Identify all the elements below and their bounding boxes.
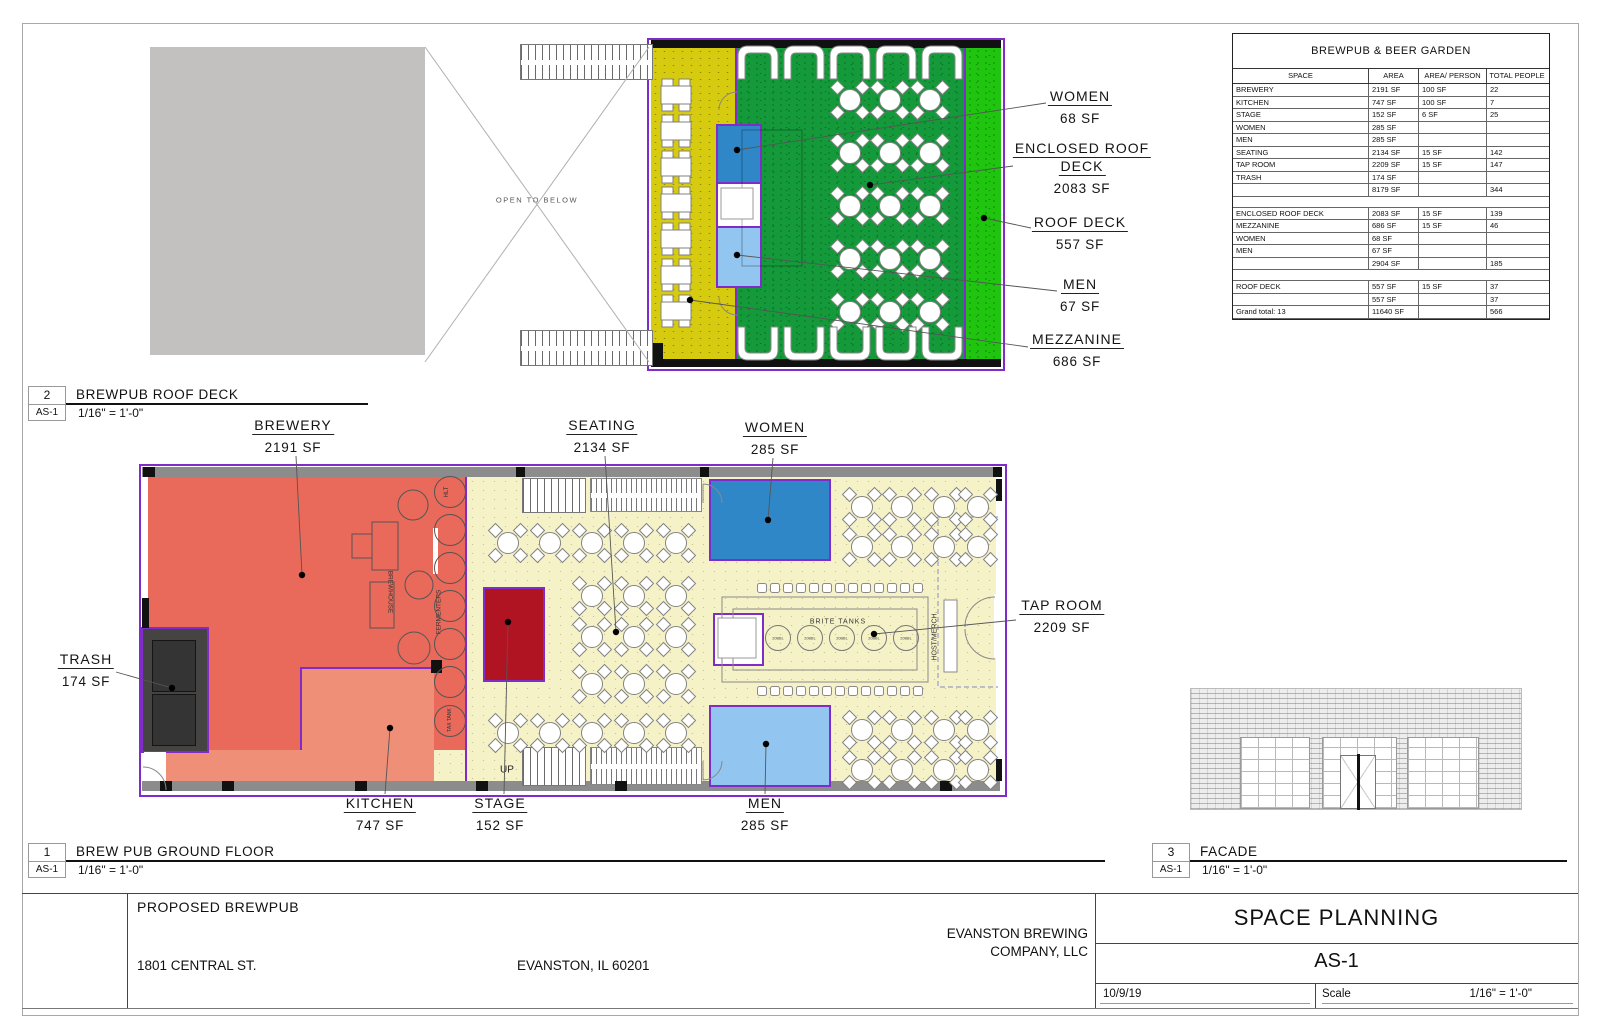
facade-window-right (1407, 737, 1479, 809)
area-table-cell-people: 185 (1486, 258, 1547, 270)
facade-door-mullion (1357, 754, 1360, 810)
area-table-cell-area: 8179 SF (1368, 184, 1418, 196)
roof-room-women (716, 124, 762, 184)
area-table-cell-area: 557 SF (1368, 281, 1418, 293)
hightop-bench-top (590, 478, 702, 512)
area-table-cell-per (1418, 306, 1486, 318)
area-table-cell-per (1418, 172, 1486, 184)
seating-stair-bottom (522, 747, 586, 786)
area-table-cell-people (1486, 122, 1547, 134)
area-table-cell-per (1418, 245, 1486, 257)
callout-mezzanine: MEZZANINE686 SF (1030, 331, 1124, 369)
tag-sheet: AS-1 (28, 862, 66, 878)
area-table-cell-area: 152 SF (1368, 109, 1418, 121)
callout-area-value: 686 SF (1030, 354, 1124, 369)
callout-label: MEN (746, 795, 784, 813)
room-enclosed-roof-deck (737, 48, 966, 359)
callout-label: TAP ROOM (1019, 597, 1104, 615)
area-table-cell-people (1486, 172, 1547, 184)
area-table-cell-per: 100 SF (1418, 97, 1486, 109)
area-table-cell-people: 566 (1486, 306, 1547, 318)
callout-label: MEN (1061, 276, 1099, 294)
callout-label: MEZZANINE (1030, 331, 1124, 349)
area-table-cell-area: 2209 SF (1368, 159, 1418, 171)
callout-men: MEN67 SF (1060, 276, 1100, 314)
wall-pier (516, 467, 525, 477)
area-table-row (1233, 197, 1549, 208)
roof-stair-top (520, 44, 653, 80)
wall-pier (996, 759, 1002, 781)
area-table-row: KITCHEN747 SF100 SF7 (1233, 97, 1549, 110)
callout-seating: SEATING2134 SF (566, 417, 637, 455)
area-table-body: BREWERY2191 SF100 SF22KITCHEN747 SF100 S… (1233, 84, 1549, 319)
brewery-seating-divider (465, 477, 467, 781)
seating-stair-top (522, 478, 586, 513)
scale-underline (1322, 1003, 1573, 1004)
area-table-cell-space: MEN (1233, 134, 1368, 146)
wall-pier (700, 467, 709, 477)
area-table-cell-space (1233, 258, 1368, 270)
area-table-cell-space: KITCHEN (1233, 97, 1368, 109)
area-table-cell-people: 37 (1486, 294, 1547, 306)
area-table-cell-people (1486, 245, 1547, 257)
roof-elevator (716, 182, 762, 228)
col-area-person: AREA/ PERSON (1418, 69, 1486, 83)
company-line2: COMPANY, LLC (860, 943, 1088, 961)
area-table-cell-per: 15 SF (1418, 147, 1486, 159)
callout-area-value: 2191 SF (252, 440, 334, 455)
callout-area-value: 174 SF (58, 674, 114, 689)
callout-stage: STAGE152 SF (472, 795, 527, 833)
wall-pier (160, 781, 172, 791)
area-table-cell-area: 747 SF (1368, 97, 1418, 109)
tax-tank-label: TAX TANK (447, 708, 453, 732)
area-table: BREWPUB & BEER GARDEN SPACE AREA AREA/ P… (1232, 33, 1550, 320)
area-table-cell-space: WOMEN (1233, 122, 1368, 134)
area-table-cell-area: 686 SF (1368, 220, 1418, 232)
callout-area-value: 2134 SF (566, 440, 637, 455)
brewhouse-label: BREWHOUSE (387, 571, 394, 614)
area-table-row: TAP ROOM2209 SF15 SF147 (1233, 159, 1549, 172)
date-underline (1100, 1003, 1310, 1004)
tag-scale: 1/16" = 1'-0" (1202, 863, 1267, 877)
hlt-label: HLT (444, 487, 450, 498)
callout-label: WOMEN (1048, 88, 1112, 106)
wall-pier (996, 479, 1002, 501)
area-table-row: WOMEN285 SF (1233, 122, 1549, 135)
callout-area-value: 747 SF (344, 818, 416, 833)
room-women-ground (709, 479, 831, 561)
drawing-tag-roof-deck: 2 AS-1 BREWPUB ROOF DECK 1/16" = 1'-0" (28, 386, 388, 422)
area-table-cell-space: TRASH (1233, 172, 1368, 184)
fermenters-label: FERMENTERS (436, 590, 443, 635)
area-table-cell-space: MEN (1233, 245, 1368, 257)
area-table-cell-space: SEATING (1233, 147, 1368, 159)
area-table-cell-people: 139 (1486, 208, 1547, 220)
area-table-row: 8179 SF344 (1233, 184, 1549, 197)
callout-area-value: 285 SF (741, 818, 789, 833)
area-table-row: 2904 SF185 (1233, 258, 1549, 271)
area-table-cell-space: ENCLOSED ROOF DECK (1233, 208, 1368, 220)
tag-number: 2 (28, 386, 66, 405)
wall-pier (143, 467, 155, 477)
area-table-cell-area: 2083 SF (1368, 208, 1418, 220)
area-table-cell-per: 6 SF (1418, 109, 1486, 121)
scale-value: 1/16" = 1'-0" (1400, 988, 1532, 1000)
area-table-cell-per: 15 SF (1418, 281, 1486, 293)
tag-title: BREWPUB ROOF DECK (76, 387, 238, 402)
deck-divider (964, 48, 966, 359)
area-table-row: SEATING2134 SF15 SF142 (1233, 147, 1549, 160)
area-table-row: ENCLOSED ROOF DECK2083 SF15 SF139 (1233, 208, 1549, 221)
project-address: 1801 CENTRAL ST. (137, 958, 257, 973)
callout-label: KITCHEN (344, 795, 416, 813)
company-line1: EVANSTON BREWING (860, 925, 1088, 943)
area-table-cell-space: ROOF DECK (1233, 281, 1368, 293)
wall-pier (476, 781, 488, 791)
scale-label: Scale (1322, 988, 1351, 1000)
area-table-cell-people: 7 (1486, 97, 1547, 109)
area-table-cell-area: 68 SF (1368, 233, 1418, 245)
callout-label: ENCLOSED ROOF (1013, 140, 1151, 158)
area-table-cell-per: 15 SF (1418, 220, 1486, 232)
callout-label: STAGE (472, 795, 527, 813)
brewery-wall-sliver (433, 528, 438, 574)
area-table-title: BREWPUB & BEER GARDEN (1233, 34, 1549, 69)
area-table-cell-people: 22 (1486, 84, 1547, 96)
callout-enclosed-roof-deck: ENCLOSED ROOFDECK2083 SF (1013, 140, 1151, 196)
tag-sheet: AS-1 (1152, 862, 1190, 878)
up-label: UP (500, 765, 514, 776)
room-kitchen-lower (163, 750, 434, 781)
area-table-row: TRASH174 SF (1233, 172, 1549, 185)
room-kitchen-upper (300, 667, 434, 752)
area-table-cell-per (1418, 122, 1486, 134)
callout-area-value: 2209 SF (1019, 620, 1104, 635)
area-table-row: ROOF DECK557 SF15 SF37 (1233, 281, 1549, 294)
area-table-row: WOMEN68 SF (1233, 233, 1549, 246)
tag-sheet: AS-1 (28, 405, 66, 421)
callout-tap-room: TAP ROOM2209 SF (1019, 597, 1104, 635)
wall-pier (142, 598, 149, 628)
area-table-cell-area: 557 SF (1368, 294, 1418, 306)
callout-area-value: 67 SF (1060, 299, 1100, 314)
area-table-cell-area: 2904 SF (1368, 258, 1418, 270)
cream-under-strip (434, 750, 467, 781)
area-table-cell-people: 147 (1486, 159, 1547, 171)
entry-door-gap (994, 594, 1004, 658)
area-table-cell-area: 285 SF (1368, 122, 1418, 134)
callout-kitchen: KITCHEN747 SF (344, 795, 416, 833)
area-table-cell-area: 285 SF (1368, 134, 1418, 146)
area-table-cell-space: WOMEN (1233, 233, 1368, 245)
roof-wall-bottom (651, 359, 1001, 367)
area-table-cell-space: Grand total: 13 (1233, 306, 1368, 318)
drawing-tag-ground-floor: 1 AS-1 BREW PUB GROUND FLOOR 1/16" = 1'-… (28, 843, 1118, 879)
area-table-cell-space (1233, 184, 1368, 196)
roof-room-men (716, 226, 762, 288)
area-table-cell-per (1418, 233, 1486, 245)
area-table-cell-per: 100 SF (1418, 84, 1486, 96)
sheet-number: AS-1 (1095, 950, 1578, 973)
room-roof-deck (966, 48, 1001, 359)
area-table-cell-people (1486, 233, 1547, 245)
roof-wall-top (651, 40, 1001, 48)
callout-area-value: 557 SF (1032, 237, 1128, 252)
area-table-cell-people: 142 (1486, 147, 1547, 159)
hightop-bench-bottom (590, 747, 702, 785)
callout-label: BREWERY (252, 417, 334, 435)
area-table-cell-per: 15 SF (1418, 159, 1486, 171)
area-table-row: MEZZANINE686 SF15 SF46 (1233, 220, 1549, 233)
area-table-cell-space: BREWERY (1233, 84, 1368, 96)
kitchen-door-gap (144, 752, 166, 781)
col-total-people: TOTAL PEOPLE (1486, 69, 1547, 83)
area-table-cell-people (1486, 134, 1547, 146)
titleblock-bottom-line (22, 1008, 1578, 1009)
callout-label: ROOF DECK (1032, 214, 1128, 232)
tag-scale: 1/16" = 1'-0" (78, 406, 143, 420)
callout-label: SEATING (566, 417, 637, 435)
callout-label: TRASH (58, 651, 114, 669)
titleblock-top-line (22, 893, 1578, 894)
area-table-cell-per (1418, 294, 1486, 306)
area-table-cell-area: 67 SF (1368, 245, 1418, 257)
area-table-row (1233, 270, 1549, 281)
callout-area-value: 285 SF (743, 442, 807, 457)
area-table-row: BREWERY2191 SF100 SF22 (1233, 84, 1549, 97)
titleblock-divider (1095, 983, 1578, 984)
titleblock-divider (127, 893, 128, 1008)
callout-roof-deck: ROOF DECK557 SF (1032, 214, 1128, 252)
project-city: EVANSTON, IL 60201 (517, 958, 650, 973)
project-name: PROPOSED BREWPUB (137, 899, 299, 915)
drawing-sheet: OPEN TO BELOW BRITE TANKS HOST/MERCH. BR… (0, 0, 1600, 1035)
drawing-tag-facade: 3 AS-1 FACADE 1/16" = 1'-0" (1152, 843, 1572, 879)
callout-brewery: BREWERY2191 SF (252, 417, 334, 455)
facade-door (1340, 755, 1376, 809)
area-table-header: SPACE AREA AREA/ PERSON TOTAL PEOPLE (1233, 69, 1549, 84)
company-name: EVANSTON BREWING COMPANY, LLC (860, 925, 1088, 961)
callout-area-value: 68 SF (1048, 111, 1112, 126)
trash-dumpster (152, 640, 196, 692)
area-table-cell-people: 344 (1486, 184, 1547, 196)
area-table-cell-space: TAP ROOM (1233, 159, 1368, 171)
titleblock-divider (1095, 943, 1578, 944)
callout-label: DECK (1059, 158, 1106, 176)
area-table-cell-space: MEZZANINE (1233, 220, 1368, 232)
callout-label: WOMEN (743, 419, 807, 437)
area-table-cell-area: 2134 SF (1368, 147, 1418, 159)
area-table-cell-people: 46 (1486, 220, 1547, 232)
open-to-below-note: OPEN TO BELOW (496, 196, 578, 205)
wall-pier (431, 660, 442, 673)
area-table-cell-per: 15 SF (1418, 208, 1486, 220)
col-space: SPACE (1233, 69, 1368, 83)
roof-stair-bottom (520, 330, 653, 366)
callout-women: WOMEN285 SF (743, 419, 807, 457)
wall-pier (615, 781, 627, 791)
area-table-cell-per (1418, 184, 1486, 196)
wall-pier (355, 781, 367, 791)
area-table-cell-per (1418, 258, 1486, 270)
tag-number: 1 (28, 843, 66, 862)
callout-trash: TRASH174 SF (58, 651, 114, 689)
sheet-date: 10/9/19 (1103, 988, 1141, 1000)
ground-wall-top (142, 467, 1000, 477)
tag-title: FACADE (1200, 844, 1258, 859)
area-table-cell-area: 2191 SF (1368, 84, 1418, 96)
area-table-cell-people: 37 (1486, 281, 1547, 293)
col-area: AREA (1368, 69, 1418, 83)
room-men-ground (709, 705, 831, 787)
area-table-row: MEN285 SF (1233, 134, 1549, 147)
wall-pier (993, 467, 1002, 477)
adjacent-roof-area (150, 47, 425, 355)
host-merch-label: HOST/MERCH. (932, 612, 939, 661)
room-stage (483, 587, 545, 682)
callout-women: WOMEN68 SF (1048, 88, 1112, 126)
area-table-row: MEN67 SF (1233, 245, 1549, 258)
callout-men: MEN285 SF (741, 795, 789, 833)
area-table-cell-space: STAGE (1233, 109, 1368, 121)
wall-pier (222, 781, 234, 791)
area-table-cell-area: 174 SF (1368, 172, 1418, 184)
area-table-cell-per (1418, 134, 1486, 146)
tag-number: 3 (1152, 843, 1190, 862)
callout-area-value: 2083 SF (1013, 181, 1151, 196)
facade-window-left (1240, 737, 1310, 809)
area-table-cell-people: 25 (1486, 109, 1547, 121)
wall-pier (940, 781, 952, 791)
titleblock-divider (1315, 983, 1316, 1008)
trash-dumpster (152, 694, 196, 746)
ground-elevator (713, 613, 764, 666)
sheet-title: SPACE PLANNING (1095, 905, 1578, 931)
brite-tanks-label: BRITE TANKS (810, 619, 866, 626)
area-table-row: 557 SF37 (1233, 294, 1549, 307)
area-table-cell-space (1233, 294, 1368, 306)
area-table-cell-area: 11640 SF (1368, 306, 1418, 318)
area-table-row: Grand total: 1311640 SF566 (1233, 306, 1549, 319)
tag-scale: 1/16" = 1'-0" (78, 863, 143, 877)
callout-area-value: 152 SF (472, 818, 527, 833)
area-table-row: STAGE152 SF6 SF25 (1233, 109, 1549, 122)
tag-title: BREW PUB GROUND FLOOR (76, 844, 275, 859)
